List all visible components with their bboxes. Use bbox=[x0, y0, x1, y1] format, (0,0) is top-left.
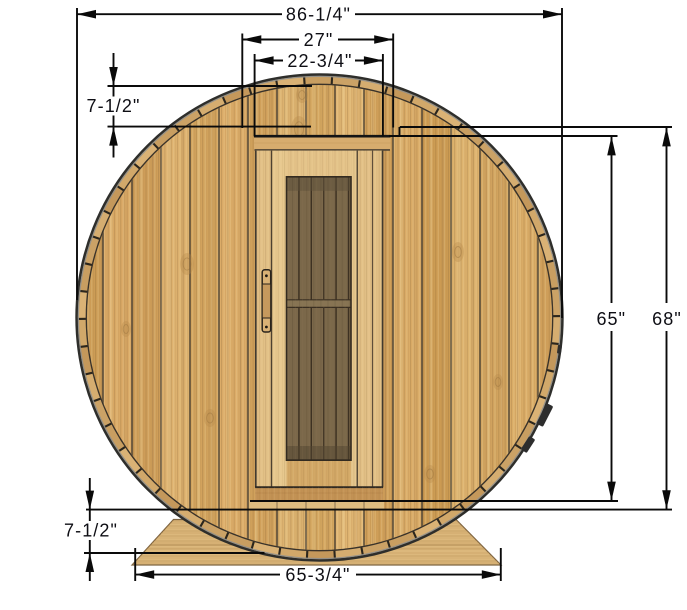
svg-text:22-3/4": 22-3/4" bbox=[287, 51, 352, 71]
svg-text:65": 65" bbox=[596, 309, 626, 329]
svg-text:86-1/4": 86-1/4" bbox=[286, 5, 351, 25]
svg-text:27": 27" bbox=[304, 30, 334, 50]
svg-text:7-1/2": 7-1/2" bbox=[64, 521, 118, 541]
svg-text:68": 68" bbox=[652, 309, 682, 329]
svg-text:65-3/4": 65-3/4" bbox=[285, 565, 350, 585]
svg-text:7-1/2": 7-1/2" bbox=[86, 96, 140, 116]
